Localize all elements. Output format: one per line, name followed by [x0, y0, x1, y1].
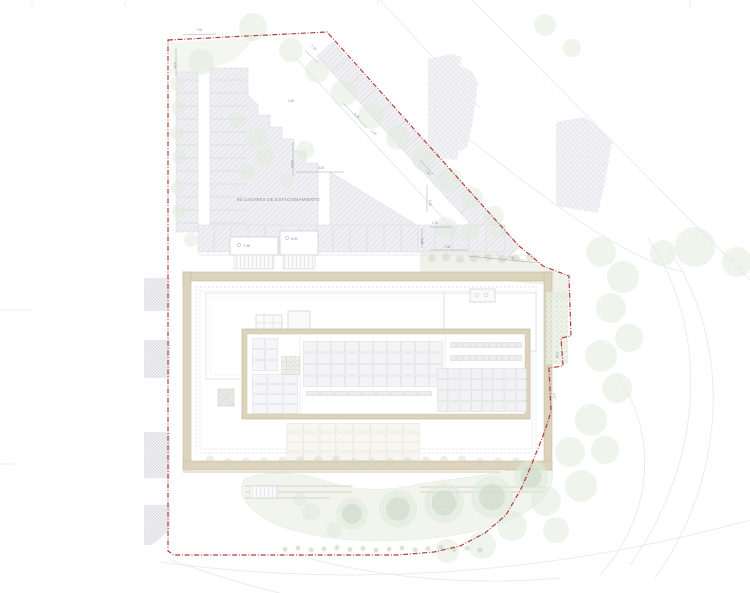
- dimension-label: 3.18: [420, 238, 424, 244]
- tree: [184, 233, 198, 247]
- terraced-seating: [438, 391, 448, 401]
- paving-grid: [320, 433, 336, 442]
- paving-grid: [337, 424, 353, 433]
- desk-row: [477, 343, 483, 348]
- bush: [458, 456, 466, 464]
- ramp-stairs-b: [283, 255, 315, 269]
- desk-row: [457, 343, 463, 348]
- desk-row: [509, 356, 515, 361]
- tree: [461, 187, 483, 209]
- paving-grid: [320, 424, 336, 433]
- bush: [314, 456, 322, 464]
- bush: [332, 456, 340, 464]
- table-grid: [416, 342, 429, 353]
- room-grid: [283, 405, 297, 414]
- table-grid: [346, 342, 359, 353]
- bush: [404, 457, 412, 465]
- terraced-seating: [494, 402, 504, 412]
- table-grid: [360, 365, 373, 376]
- paving-grid: [303, 433, 319, 442]
- dimension-label: 1.50: [288, 99, 294, 103]
- table-grid: [374, 376, 387, 387]
- column-row: [335, 392, 348, 396]
- planter-grid: [296, 361, 300, 365]
- bush: [456, 255, 464, 263]
- tree: [585, 340, 617, 372]
- room-grid: [283, 395, 297, 404]
- tree: [607, 261, 639, 293]
- table-grid: [374, 365, 387, 376]
- planter-grid: [291, 361, 295, 365]
- tree: [170, 77, 184, 91]
- site-plan-drawing: 7.98 8.01 7.303.231.105.402.401.5010.008…: [0, 0, 750, 593]
- table-grid: [332, 376, 345, 387]
- tree-crown: [386, 497, 410, 521]
- bush: [278, 457, 286, 465]
- column-row: [321, 392, 334, 396]
- bush: [322, 546, 327, 551]
- planter-grid: [286, 366, 290, 370]
- table-grid: [318, 342, 331, 353]
- terraced-seating: [438, 369, 448, 379]
- bush: [348, 547, 353, 552]
- sidewalk-paving-blocks: [144, 278, 170, 545]
- terraced-seating: [494, 391, 504, 401]
- desk-row: [496, 343, 502, 348]
- terraced-seating: [483, 380, 493, 390]
- desk-row: [509, 343, 515, 348]
- dimension-label: 10.00: [290, 160, 294, 168]
- bush: [470, 254, 478, 262]
- room-grid: [253, 361, 265, 371]
- dimension-label: 1.10: [428, 200, 432, 206]
- room-grid: [283, 375, 297, 384]
- desk-row: [470, 356, 476, 361]
- terraced-seating: [483, 369, 493, 379]
- table-grid: [416, 353, 429, 364]
- bush: [374, 548, 379, 553]
- tree: [170, 126, 184, 140]
- bush: [512, 457, 520, 465]
- planter-grid: [296, 371, 300, 375]
- tree-crown: [479, 484, 505, 510]
- room-grid: [268, 375, 282, 384]
- column-row: [307, 392, 320, 396]
- bush: [260, 457, 268, 465]
- desk-row: [483, 356, 489, 361]
- room-grid: [253, 395, 267, 404]
- desk-row: [503, 343, 509, 348]
- table-grid: [402, 376, 415, 387]
- paving-grid: [303, 424, 319, 433]
- terraced-seating: [483, 391, 493, 401]
- desk-row: [464, 343, 470, 348]
- table-grid: [304, 342, 317, 353]
- tree: [302, 503, 320, 521]
- table-grid: [304, 353, 317, 364]
- tree: [229, 112, 245, 128]
- room-grid: [253, 339, 265, 349]
- tree: [305, 59, 329, 83]
- terraced-seating: [505, 369, 515, 379]
- bush: [350, 458, 358, 466]
- neighbor-building-east: [556, 117, 612, 213]
- tree: [543, 517, 569, 543]
- terraced-seating: [471, 369, 481, 379]
- dimension-label: 7.30: [196, 28, 203, 32]
- table-grid: [318, 365, 331, 376]
- bush: [422, 456, 430, 464]
- bush: [283, 547, 288, 552]
- table-grid: [332, 342, 345, 353]
- paving-grid: [387, 424, 403, 433]
- terraced-seating: [516, 402, 526, 412]
- tree: [293, 492, 307, 506]
- parking-wedge: [330, 172, 428, 232]
- table-grid: [360, 376, 373, 387]
- bush: [426, 546, 431, 551]
- desk-row: [451, 356, 457, 361]
- tree-crown: [342, 504, 362, 524]
- bush: [400, 545, 405, 550]
- ramp-level-b: 8.01: [291, 237, 298, 241]
- paving-grid: [354, 433, 370, 442]
- terraced-seating: [494, 380, 504, 390]
- roof-equipment-b: [288, 311, 310, 330]
- table-grid: [388, 353, 401, 364]
- desk-row: [483, 343, 489, 348]
- table-grid: [388, 365, 401, 376]
- tree: [296, 141, 314, 159]
- room-grid: [268, 385, 282, 394]
- terraced-seating: [471, 402, 481, 412]
- planter-grid: [282, 357, 286, 361]
- paving-grid: [404, 424, 420, 433]
- bush: [494, 458, 502, 466]
- desk-row: [451, 343, 457, 348]
- table-grid: [304, 376, 317, 387]
- table-grid: [360, 353, 373, 364]
- paving-grid: [370, 433, 386, 442]
- terraced-seating: [460, 391, 470, 401]
- table-grid: [318, 353, 331, 364]
- dimension-label: 2.40: [370, 129, 377, 136]
- bush: [368, 458, 376, 466]
- dimension-label: 8.00: [318, 166, 324, 170]
- parking-count-label: 60 LUGARES DE ESTACIONAMIENTO: [237, 197, 320, 202]
- bush: [428, 254, 436, 262]
- table-grid: [346, 353, 359, 364]
- table-grid: [402, 353, 415, 364]
- tree: [247, 128, 267, 148]
- room-grid: [268, 405, 282, 414]
- paving-grid: [404, 433, 420, 442]
- table-grid: [304, 365, 317, 376]
- bush: [413, 547, 418, 552]
- tree: [615, 324, 643, 352]
- tree: [171, 181, 185, 195]
- bush: [242, 458, 250, 466]
- table-grid: [416, 365, 429, 376]
- planter-grid: [286, 357, 290, 361]
- terraced-seating: [471, 391, 481, 401]
- planter-grid: [296, 357, 300, 361]
- room-grid: [266, 339, 278, 349]
- planter-grid: [282, 371, 286, 375]
- desk-row: [496, 356, 502, 361]
- table-grid: [346, 365, 359, 376]
- tree: [239, 13, 267, 41]
- podium-wall-north: [183, 272, 552, 281]
- terraced-seating: [505, 402, 515, 412]
- tree: [171, 101, 185, 115]
- desk-row: [490, 356, 496, 361]
- terraced-seating: [449, 391, 459, 401]
- table-grid: [332, 365, 345, 376]
- tree: [188, 49, 214, 75]
- table-grid: [430, 342, 443, 353]
- table-grid: [416, 376, 429, 387]
- room-grid: [253, 375, 267, 384]
- tree: [650, 240, 676, 266]
- table-grid: [346, 376, 359, 387]
- ramp-stairs-a: [234, 255, 274, 269]
- bush: [335, 545, 340, 550]
- tree: [172, 150, 186, 164]
- tree: [575, 404, 607, 436]
- paving-grid: [287, 443, 303, 452]
- column-row: [391, 392, 404, 396]
- terraced-seating: [505, 380, 515, 390]
- tree: [565, 470, 597, 502]
- table-grid: [430, 353, 443, 364]
- room-grid: [266, 350, 278, 360]
- desk-row: [516, 343, 522, 348]
- terraced-seating: [460, 402, 470, 412]
- desk-row: [490, 343, 496, 348]
- bush: [476, 458, 484, 466]
- tree: [279, 38, 303, 62]
- column-row: [363, 392, 376, 396]
- table-grid: [388, 342, 401, 353]
- planter-grid: [291, 366, 295, 370]
- planter-grid: [286, 371, 290, 375]
- table-grid: [332, 353, 345, 364]
- desk-row: [457, 356, 463, 361]
- dimension-label: 7.98: [444, 245, 450, 249]
- tree: [326, 522, 342, 538]
- paving-grid: [287, 433, 303, 442]
- planter-grid: [296, 366, 300, 370]
- table-grid: [360, 342, 373, 353]
- dimension-label: 1.10: [555, 352, 559, 358]
- room-grid: [253, 385, 267, 394]
- desk-row: [464, 356, 470, 361]
- terraced-seating: [460, 380, 470, 390]
- table-grid: [318, 376, 331, 387]
- paving-grid: [354, 443, 370, 452]
- room-grid: [268, 395, 282, 404]
- bush: [224, 458, 232, 466]
- tree: [435, 217, 457, 239]
- room-grid: [253, 350, 265, 360]
- terraced-seating: [438, 380, 448, 390]
- paving-grid: [337, 443, 353, 452]
- bush: [386, 457, 394, 465]
- neighbor-building-north: [428, 54, 478, 160]
- paving-grid: [404, 443, 420, 452]
- planter-grid: [291, 371, 295, 375]
- terraced-seating: [494, 369, 504, 379]
- tree: [256, 148, 274, 166]
- paving-grid: [303, 443, 319, 452]
- paving-grid: [320, 443, 336, 452]
- column-row: [349, 392, 362, 396]
- table-grid: [374, 342, 387, 353]
- bush: [387, 547, 392, 552]
- bush: [296, 456, 304, 464]
- site-plan-page: 7.98 8.01 7.303.231.105.402.401.5010.008…: [0, 0, 750, 593]
- tree: [675, 227, 715, 267]
- bush: [442, 253, 450, 261]
- tree: [555, 437, 585, 467]
- table-grid: [388, 376, 401, 387]
- dimension-label: 1.10: [310, 44, 317, 51]
- tree: [358, 103, 384, 129]
- tree: [596, 293, 626, 323]
- terraced-seating: [460, 369, 470, 379]
- dimension-label: 2.57: [552, 393, 556, 399]
- tree: [172, 204, 186, 218]
- paving-grid: [387, 443, 403, 452]
- garden-stair: [250, 486, 278, 498]
- roof-equipment-c: [470, 289, 495, 302]
- desk-row: [503, 356, 509, 361]
- tree: [722, 247, 750, 277]
- terraced-seating: [505, 391, 515, 401]
- bush: [465, 546, 470, 551]
- tree: [239, 164, 255, 180]
- table-grid: [402, 342, 415, 353]
- bush: [206, 456, 214, 464]
- terraced-seating: [483, 402, 493, 412]
- tree: [602, 373, 632, 403]
- tree: [331, 80, 357, 106]
- tree: [534, 14, 556, 36]
- desk-row: [470, 343, 476, 348]
- ramp-boxes: 7.98 8.01: [230, 231, 318, 269]
- planter-grid: [286, 361, 290, 365]
- paving-grid: [370, 443, 386, 452]
- table-grid: [402, 365, 415, 376]
- planter-grid: [282, 366, 286, 370]
- paving-grid: [387, 433, 403, 442]
- podium-wall-west: [183, 272, 191, 470]
- planter-grid: [282, 361, 286, 365]
- paving-grid: [337, 433, 353, 442]
- terraced-seating: [449, 402, 459, 412]
- terraced-seating: [449, 369, 459, 379]
- bush: [478, 548, 483, 553]
- column-row: [419, 392, 432, 396]
- bush: [440, 456, 448, 464]
- terraced-seating: [516, 369, 526, 379]
- tree: [412, 147, 436, 171]
- bush: [439, 545, 444, 550]
- room-grid: [283, 385, 297, 394]
- tree: [280, 173, 294, 187]
- tree: [586, 237, 616, 267]
- dimension-label: 1.10: [432, 221, 438, 225]
- desk-row: [477, 356, 483, 361]
- desk-row: [516, 356, 522, 361]
- tree: [468, 531, 496, 559]
- tree: [438, 168, 462, 192]
- tree: [563, 39, 581, 57]
- terraced-seating: [471, 380, 481, 390]
- ramp-level-a: 7.98: [243, 244, 250, 248]
- tree: [461, 223, 479, 241]
- table-grid: [374, 353, 387, 364]
- column-row: [377, 392, 390, 396]
- room-grid: [266, 361, 278, 371]
- planter-grid: [291, 357, 295, 361]
- dimension-label: 3.23: [173, 62, 177, 68]
- bush: [361, 546, 366, 551]
- paving-grid: [354, 424, 370, 433]
- terraced-seating: [449, 380, 459, 390]
- terraced-seating: [516, 380, 526, 390]
- tree-crown: [432, 491, 457, 516]
- column-row: [405, 392, 418, 396]
- room-grid: [253, 405, 267, 414]
- tree: [490, 222, 506, 238]
- terraced-seating: [516, 391, 526, 401]
- tree: [386, 126, 410, 150]
- tree: [591, 436, 619, 464]
- bush: [484, 253, 492, 261]
- ramp-box-a: [230, 237, 278, 255]
- tree-crown: [520, 466, 541, 487]
- bush: [296, 546, 301, 551]
- bush: [309, 547, 314, 552]
- terraced-seating: [438, 402, 448, 412]
- ramp-box-b: [280, 231, 318, 255]
- paving-grid: [287, 424, 303, 433]
- paving-grid: [370, 424, 386, 433]
